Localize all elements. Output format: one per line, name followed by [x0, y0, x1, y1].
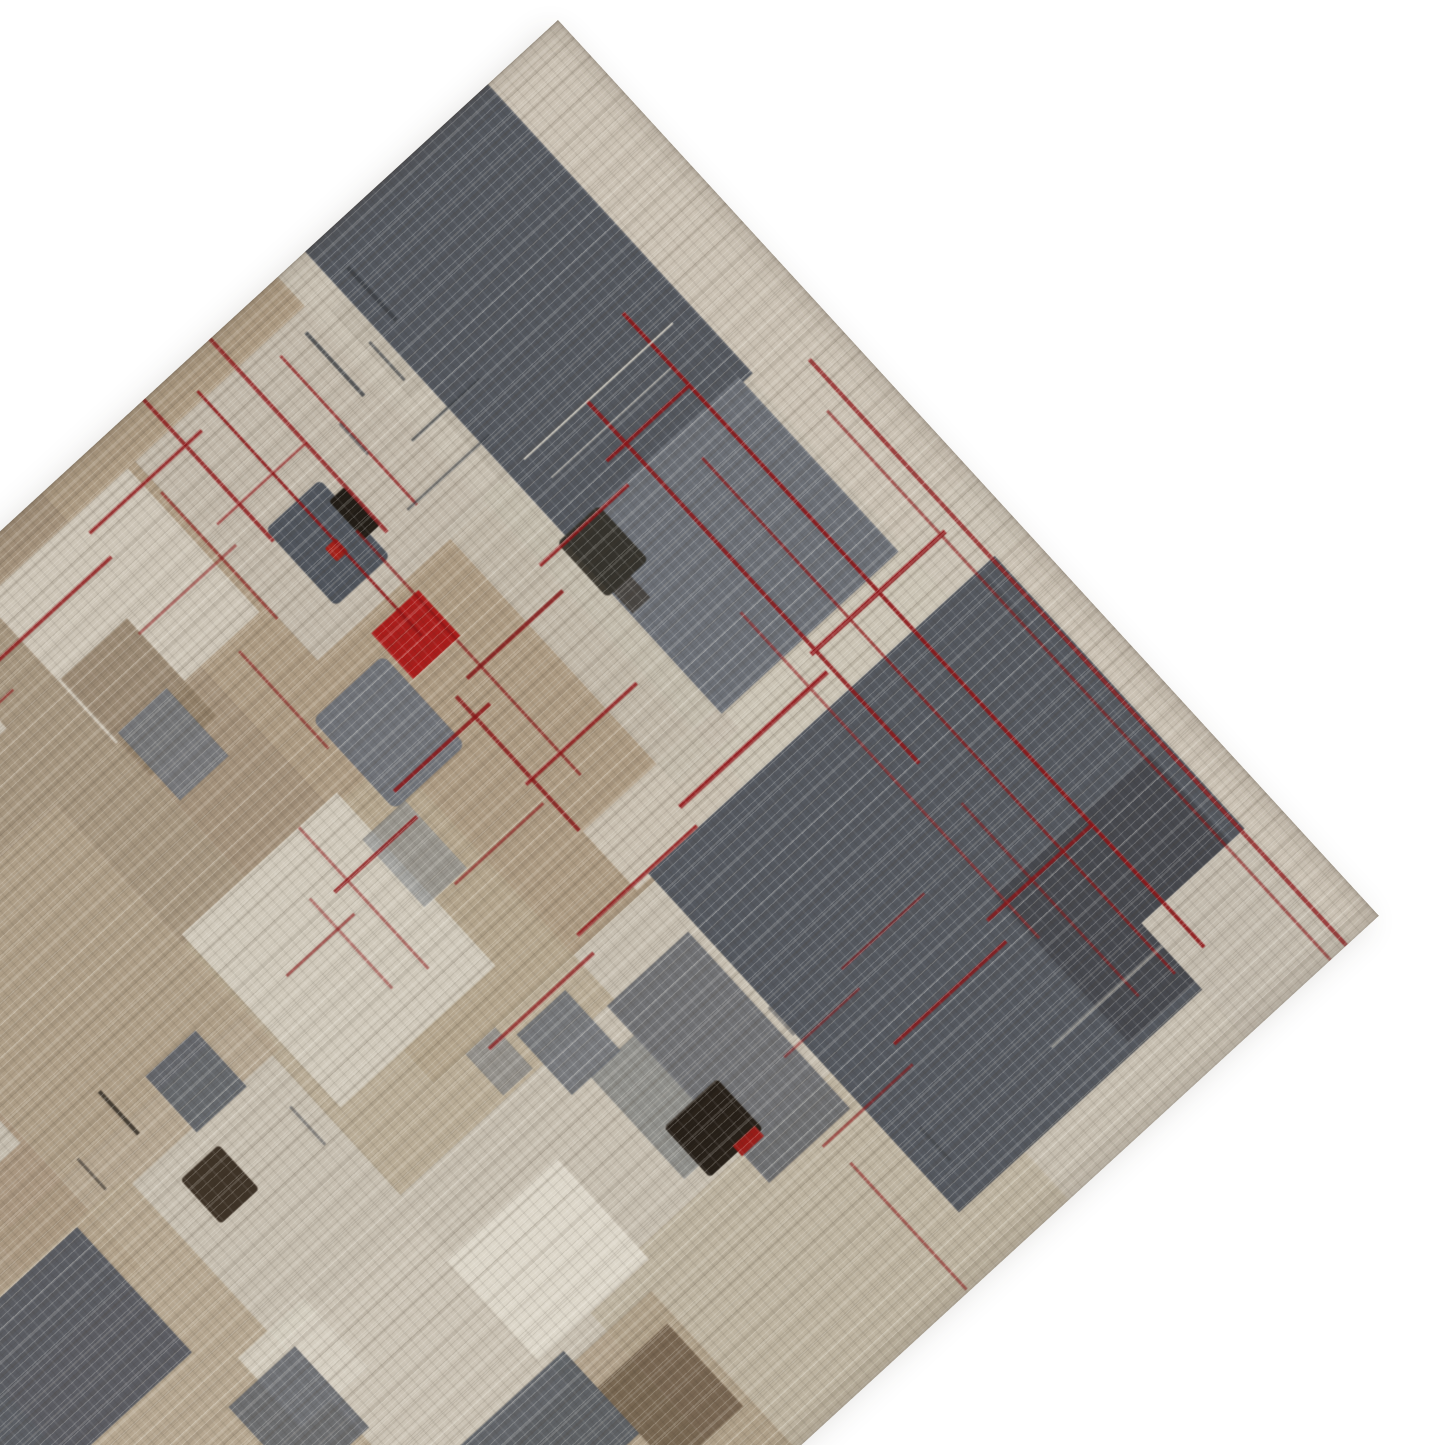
accent-line: [960, 802, 1139, 997]
accent-line: [841, 892, 926, 970]
accent-line: [808, 358, 1348, 947]
accent-line: [822, 1063, 914, 1148]
accent-line: [551, 367, 672, 478]
accent-line: [849, 1162, 967, 1291]
accent-line: [98, 1090, 140, 1135]
accent-line: [333, 815, 418, 894]
accent-line: [216, 441, 308, 526]
accent-line: [576, 824, 698, 936]
accent-line: [826, 410, 1332, 961]
accent-line: [454, 802, 545, 885]
accent-line: [605, 384, 690, 463]
accent-line: [142, 398, 275, 542]
accent-line: [289, 1105, 326, 1145]
accent-line: [809, 529, 947, 656]
accent-line: [986, 823, 1093, 922]
accent-line: [0, 555, 113, 667]
accent-line: [160, 491, 278, 620]
accent-line: [304, 331, 365, 397]
accent-line: [368, 341, 405, 381]
accent-line: [355, 529, 582, 776]
rug: [0, 20, 1379, 1445]
accent-line: [622, 312, 1206, 949]
accent-line: [538, 483, 629, 567]
accent-line: [138, 544, 237, 635]
accent-line: [0, 688, 14, 786]
photo-canvas: [0, 0, 1445, 1445]
accent-line: [984, 577, 1028, 625]
accent-line: [783, 987, 860, 1058]
accent-line: [411, 378, 481, 442]
accent-line: [406, 433, 491, 511]
accent-line: [893, 940, 1008, 1046]
accent-line: [346, 266, 398, 322]
accent-line: [678, 670, 829, 809]
accent-line: [488, 952, 595, 1051]
accent-line: [286, 913, 356, 977]
accent-line: [918, 1126, 951, 1162]
rug-accent-lines: [0, 20, 1379, 1445]
accent-line: [76, 1158, 107, 1191]
accent-line: [238, 650, 329, 749]
accent-line: [339, 422, 370, 455]
accent-line: [466, 589, 565, 680]
accent-line: [523, 322, 673, 460]
accent-line: [768, 1006, 796, 1036]
accent-line: [393, 702, 492, 793]
